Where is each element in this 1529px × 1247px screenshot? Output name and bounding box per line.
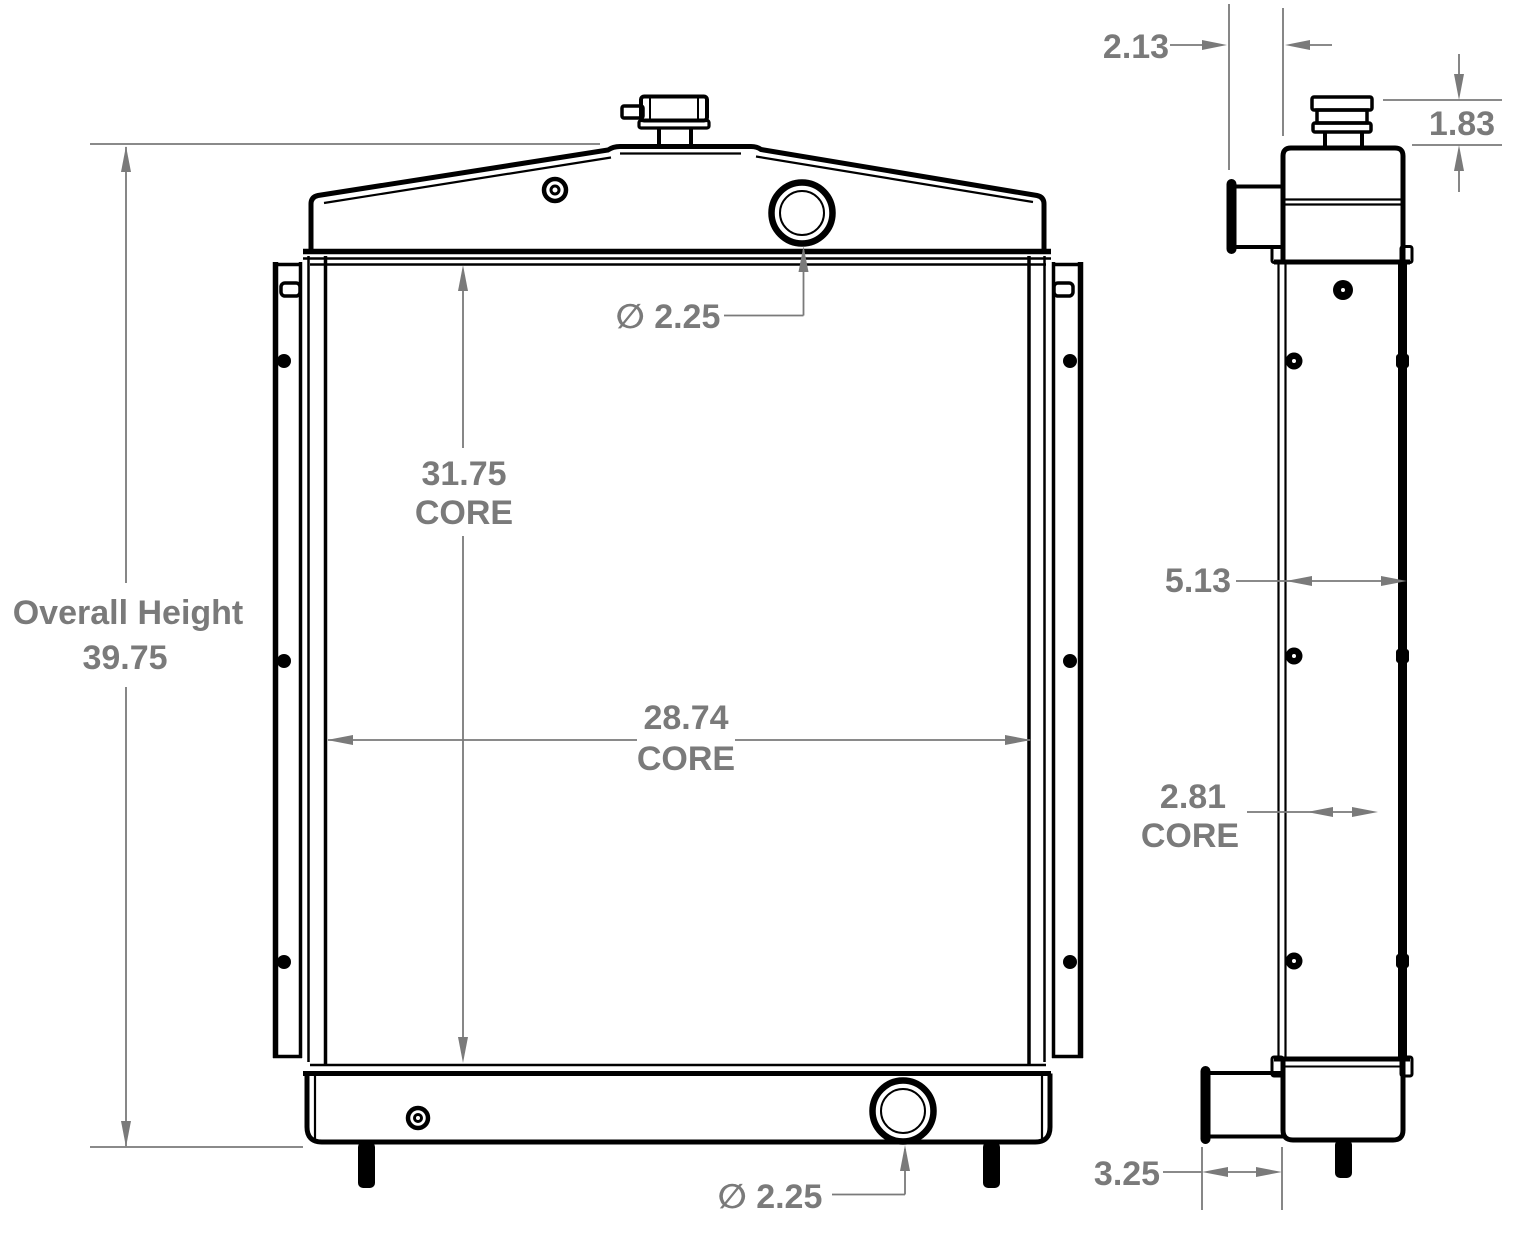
arrowhead-up <box>121 146 131 172</box>
arrowhead-down <box>121 1121 131 1147</box>
bolt-head-edge <box>1396 649 1409 663</box>
bolt-head <box>277 955 291 969</box>
core-top-lines <box>303 259 1051 265</box>
bottom-port-dimension: ∅ 2.25 <box>718 1145 910 1216</box>
core-depth-value: 2.81 <box>1160 778 1226 816</box>
bolt-head <box>1063 354 1077 368</box>
arrowhead-left <box>1202 1167 1228 1177</box>
front-view <box>273 97 1083 1189</box>
top-tank-outline <box>311 147 1044 253</box>
radiator-technical-drawing: Overall Height 39.75 31.75 CORE 28.74 CO… <box>0 0 1529 1247</box>
arrowhead-left <box>1285 40 1310 50</box>
arrowhead-right <box>1005 735 1031 745</box>
arrowhead-right <box>1352 807 1378 817</box>
bracket-tab <box>1054 283 1073 296</box>
mounting-foot <box>358 1142 375 1188</box>
mounting-bracket-right <box>1052 262 1083 1058</box>
top-tank-small-hole <box>544 179 566 201</box>
outlet-pipe-side <box>1206 1071 1284 1139</box>
filler-cap-side <box>1312 97 1372 147</box>
core-height-unit: CORE <box>415 494 513 532</box>
bracket-tab <box>281 283 300 296</box>
overall-height-dimension: Overall Height 39.75 <box>13 144 600 1147</box>
arrowhead-up <box>900 1145 910 1171</box>
arrowhead-right <box>1256 1167 1282 1177</box>
outlet-length-value: 3.25 <box>1094 1155 1160 1193</box>
mounting-foot <box>983 1142 1000 1188</box>
overall-height-label: Overall Height <box>13 594 244 632</box>
bolt-head-edge <box>1396 354 1409 368</box>
side-core-front-face <box>1279 262 1286 1058</box>
core-depth-unit: CORE <box>1141 817 1239 855</box>
arrowhead-left <box>327 735 353 745</box>
overall-height-value: 39.75 <box>82 639 167 677</box>
mounting-bracket-left <box>273 262 302 1058</box>
arrowhead-up <box>1454 145 1464 171</box>
bolt-head-edge <box>1396 954 1409 968</box>
core-height-dimension: 31.75 CORE <box>415 265 513 1063</box>
core-width-unit: CORE <box>637 740 735 778</box>
bolt-head <box>277 354 291 368</box>
arrowhead-left <box>1286 576 1312 586</box>
bolt-head <box>277 654 291 668</box>
arrowhead-left <box>1307 807 1333 817</box>
core-height-value: 31.75 <box>421 455 506 493</box>
inlet-protrusion-dimension: 2.13 <box>1103 4 1332 170</box>
bolt-head <box>1063 654 1077 668</box>
filler-cap-front <box>622 97 709 147</box>
core-depth-dimension: 2.81 CORE <box>1141 778 1378 855</box>
arrowhead-down <box>458 1037 468 1063</box>
bottom-port-diameter-label: ∅ 2.25 <box>718 1178 823 1216</box>
side-bottom-tank <box>1283 1059 1403 1140</box>
side-bolts <box>1286 280 1410 970</box>
core-side-edges <box>326 256 1030 1065</box>
bolt-head <box>1063 955 1077 969</box>
outlet-length-dimension: 3.25 <box>1094 1147 1282 1210</box>
arrowhead-right <box>1202 40 1227 50</box>
arrowhead-up <box>458 265 468 291</box>
outlet-port-circle <box>873 1081 934 1142</box>
arrowhead-down <box>1454 74 1464 100</box>
inlet-pipe-side <box>1232 184 1284 249</box>
mounting-foot <box>1335 1140 1352 1178</box>
core-width-value: 28.74 <box>643 699 728 737</box>
overall-depth-value: 5.13 <box>1165 562 1231 600</box>
drawing-canvas: Overall Height 39.75 31.75 CORE 28.74 CO… <box>0 0 1529 1247</box>
core-width-dimension: 28.74 CORE <box>327 699 1031 778</box>
cap-height-value: 1.83 <box>1429 105 1495 143</box>
inlet-protrusion-value: 2.13 <box>1103 28 1169 66</box>
inlet-port-circle <box>772 183 833 244</box>
top-port-diameter-label: ∅ 2.25 <box>616 298 721 336</box>
side-tank-seam <box>1284 200 1402 205</box>
core-side-channels <box>309 256 1045 1062</box>
side-view <box>1206 97 1413 1178</box>
bottom-tank-small-hole <box>408 1108 428 1128</box>
